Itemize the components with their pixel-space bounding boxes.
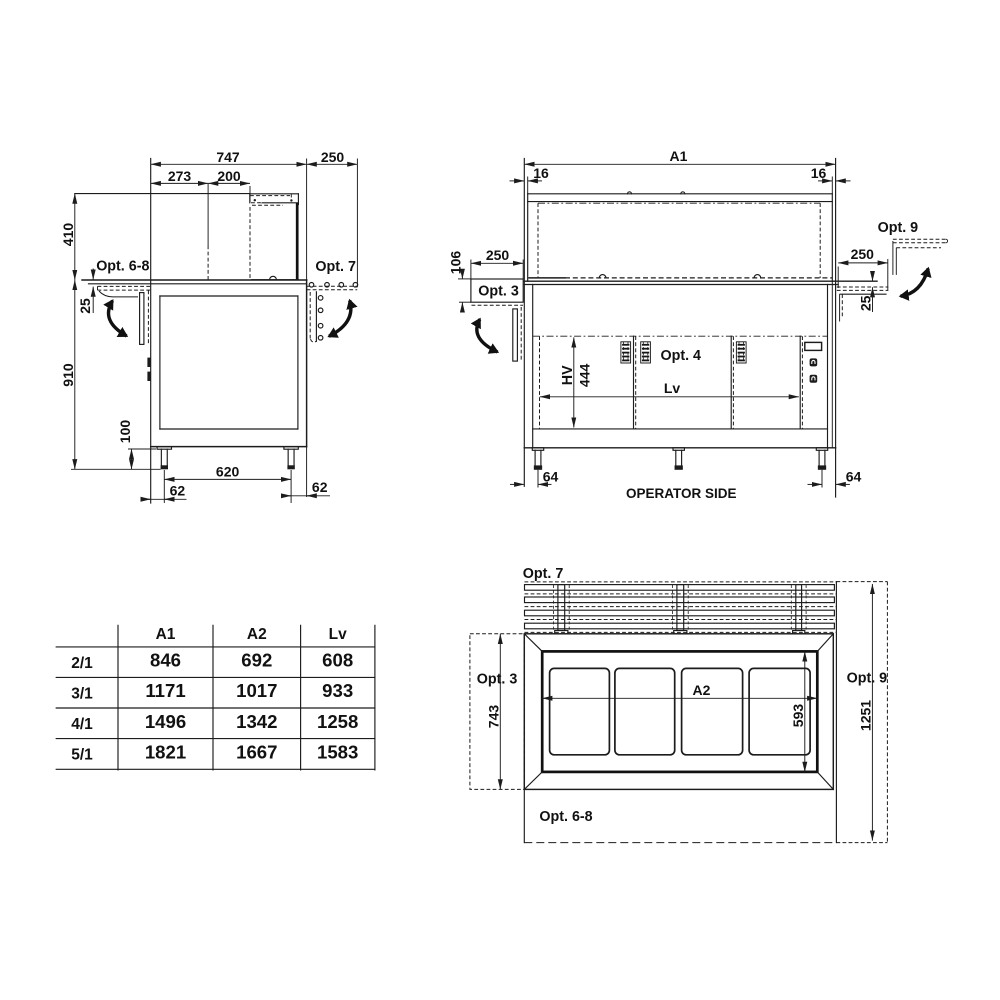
svg-text:A2: A2 xyxy=(693,682,711,698)
svg-text:910: 910 xyxy=(60,363,76,387)
svg-text:4/1: 4/1 xyxy=(71,716,93,733)
svg-text:A1: A1 xyxy=(156,626,176,643)
svg-text:Opt. 9: Opt. 9 xyxy=(847,670,888,686)
svg-text:Opt. 4: Opt. 4 xyxy=(661,348,702,364)
svg-text:1496: 1496 xyxy=(145,711,186,732)
svg-text:692: 692 xyxy=(241,650,272,671)
svg-text:5/1: 5/1 xyxy=(71,747,93,764)
svg-text:100: 100 xyxy=(117,420,133,444)
svg-text:1258: 1258 xyxy=(317,711,358,732)
svg-text:64: 64 xyxy=(543,469,559,485)
svg-text:OPERATOR SIDE: OPERATOR SIDE xyxy=(626,486,737,501)
svg-text:250: 250 xyxy=(486,247,510,263)
svg-text:250: 250 xyxy=(851,246,875,262)
svg-text:1251: 1251 xyxy=(858,700,874,731)
svg-text:62: 62 xyxy=(170,483,186,499)
svg-text:HV: HV xyxy=(560,365,576,385)
svg-text:444: 444 xyxy=(576,364,592,388)
svg-text:16: 16 xyxy=(533,165,549,181)
svg-text:62: 62 xyxy=(312,479,328,495)
svg-text:200: 200 xyxy=(217,168,241,184)
svg-text:1821: 1821 xyxy=(145,741,186,762)
svg-text:608: 608 xyxy=(322,650,353,671)
svg-text:273: 273 xyxy=(168,168,192,184)
svg-text:A2: A2 xyxy=(247,626,267,643)
svg-text:846: 846 xyxy=(150,650,181,671)
svg-text:250: 250 xyxy=(321,149,345,165)
svg-text:Opt. 6-8: Opt. 6-8 xyxy=(96,259,149,275)
svg-text:1667: 1667 xyxy=(236,741,277,762)
svg-text:A1: A1 xyxy=(670,148,688,164)
svg-text:Opt. 7: Opt. 7 xyxy=(315,259,356,275)
svg-text:64: 64 xyxy=(846,469,862,485)
svg-text:1342: 1342 xyxy=(236,711,277,732)
svg-text:Opt. 3: Opt. 3 xyxy=(477,672,518,688)
svg-text:Lv: Lv xyxy=(329,626,347,643)
svg-text:743: 743 xyxy=(486,705,502,729)
svg-text:Opt. 6-8: Opt. 6-8 xyxy=(539,809,592,825)
svg-text:747: 747 xyxy=(216,149,240,165)
svg-text:620: 620 xyxy=(216,464,240,480)
svg-text:593: 593 xyxy=(790,704,806,728)
svg-text:106: 106 xyxy=(447,251,463,275)
svg-text:Opt. 3: Opt. 3 xyxy=(478,283,519,299)
svg-text:1171: 1171 xyxy=(145,680,185,701)
svg-text:933: 933 xyxy=(322,680,353,701)
svg-text:25: 25 xyxy=(77,298,93,314)
svg-text:1583: 1583 xyxy=(317,741,358,762)
svg-text:16: 16 xyxy=(811,165,827,181)
svg-text:1017: 1017 xyxy=(236,680,277,701)
svg-text:2/1: 2/1 xyxy=(71,655,93,672)
svg-text:Lv: Lv xyxy=(664,380,681,396)
svg-text:Opt. 9: Opt. 9 xyxy=(878,220,919,236)
svg-text:410: 410 xyxy=(60,223,76,247)
svg-text:Opt. 7: Opt. 7 xyxy=(523,566,564,582)
svg-text:25: 25 xyxy=(857,295,873,311)
svg-text:3/1: 3/1 xyxy=(71,685,93,702)
